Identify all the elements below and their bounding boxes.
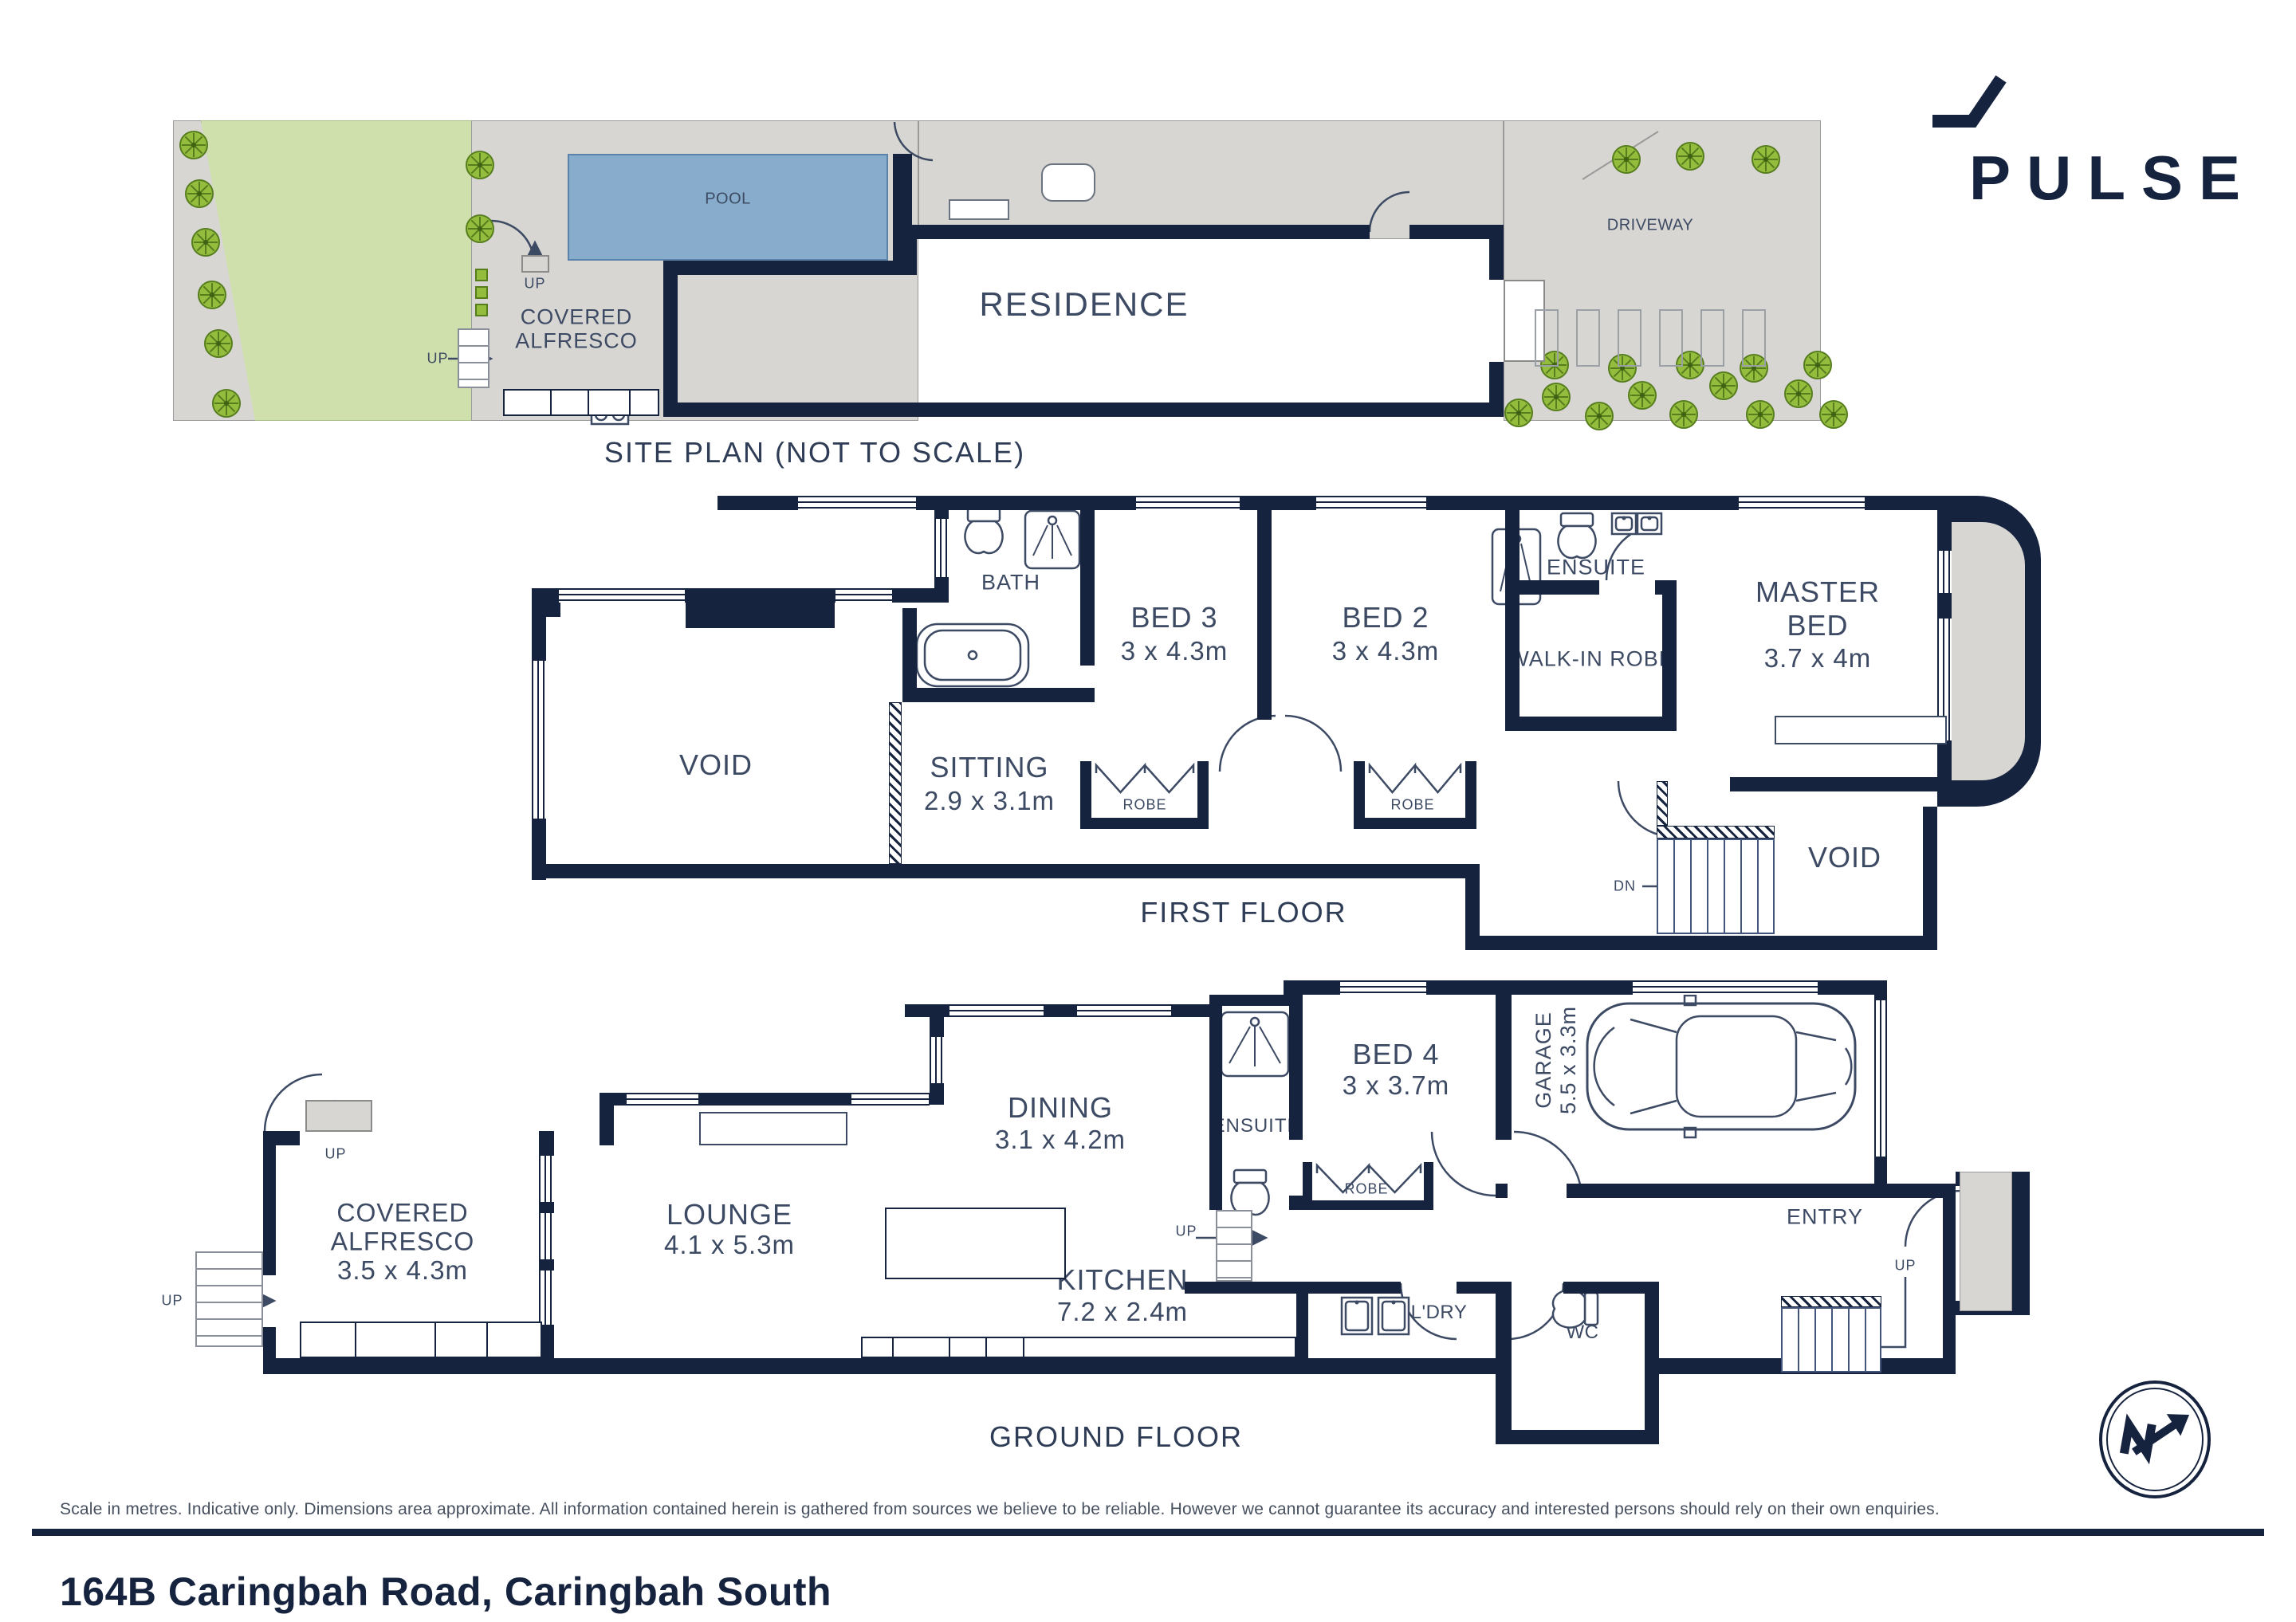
ff-robe3-label: ROBE <box>1122 797 1166 814</box>
site-step <box>521 255 549 273</box>
wall <box>1563 1282 1655 1294</box>
ff-ensuite-label: ENSUITE <box>1547 556 1645 580</box>
ff-master-label-2: BED <box>1787 609 1848 642</box>
gf-lounge-label: LOUNGE <box>666 1198 792 1231</box>
wall <box>930 1017 944 1036</box>
gf-up-label-alfresco-door: UP <box>324 1146 346 1163</box>
wall <box>893 588 949 603</box>
window <box>532 660 546 819</box>
door-arc <box>1432 1132 1496 1196</box>
site-stairs-up <box>458 328 489 388</box>
gf-dining-label: DINING <box>1008 1091 1113 1125</box>
wall <box>1489 239 1504 280</box>
gf-garage-name: GARAGE <box>1531 1006 1556 1114</box>
ff-robe2-label: ROBE <box>1390 797 1434 814</box>
site-side-yard <box>918 120 1504 239</box>
robe-zigzag <box>1370 765 1461 792</box>
wall <box>934 578 949 588</box>
ff-master-label-1: MASTER <box>1755 575 1880 609</box>
wall <box>934 510 949 518</box>
stairs-down-first-floor <box>1657 838 1775 934</box>
gf-alfresco-step <box>305 1100 372 1132</box>
wall <box>902 608 917 688</box>
door-arc <box>1508 1283 1563 1339</box>
gf-fireplace-box <box>699 1112 847 1145</box>
wall <box>902 225 1370 239</box>
gf-laundry-label: L'DRY <box>1411 1302 1468 1324</box>
wall <box>1296 1282 1308 1374</box>
shower-icon <box>1221 1012 1288 1076</box>
disclaimer-text: Scale in metres. Indicative only. Dimens… <box>60 1500 1940 1519</box>
window <box>930 1036 944 1084</box>
wall <box>263 1131 300 1145</box>
window <box>626 1093 699 1106</box>
window <box>835 588 893 603</box>
shower-icon <box>1025 511 1079 568</box>
wall <box>902 688 1095 702</box>
wall <box>663 261 678 417</box>
basin-icon <box>1637 513 1661 534</box>
toilet-icon <box>965 509 1002 553</box>
wall <box>1496 1430 1659 1444</box>
site-water-tank <box>1041 163 1095 202</box>
site-pool-label: POOL <box>705 190 751 209</box>
window <box>851 1093 930 1106</box>
window <box>1076 1004 1172 1017</box>
site-alfresco-label-1: COVERED <box>521 305 633 330</box>
wall <box>1427 496 1738 510</box>
wall <box>2012 1172 2030 1315</box>
window <box>558 588 686 603</box>
gf-left-stairs-up <box>195 1251 263 1347</box>
wall <box>1465 936 1937 950</box>
gf-lounge-dims: 4.1 x 5.3m <box>664 1230 795 1260</box>
wall <box>600 1093 614 1145</box>
basin-icon <box>1378 1298 1409 1334</box>
ff-master-dims: 3.7 x 4m <box>1764 643 1872 674</box>
wall <box>911 1004 931 1017</box>
site-plan-title: SITE PLAN (NOT TO SCALE) <box>604 436 1025 469</box>
wall <box>930 1084 944 1105</box>
wall <box>263 1145 276 1275</box>
ff-sitting-label: SITTING <box>930 751 1049 784</box>
window <box>934 518 949 578</box>
wall <box>1209 1006 1222 1210</box>
site-up-label-pool: UP <box>524 276 545 293</box>
bench-divider <box>550 389 552 416</box>
bench-divider <box>588 389 589 416</box>
ff-wir-label: WALK-IN ROBE <box>1508 647 1674 672</box>
window <box>1135 496 1240 510</box>
gf-alfresco-label-2: ALFRESCO <box>331 1227 474 1257</box>
wall <box>1409 225 1504 239</box>
tree-icon <box>1820 401 1847 428</box>
wall <box>1289 995 1303 1140</box>
wall <box>1520 717 1677 731</box>
address-title: 164B Caringbah Road, Caringbah South <box>60 1569 832 1615</box>
robe-zigzag <box>1096 765 1193 792</box>
wall <box>673 261 917 275</box>
gf-up-label-entry-stairs: UP <box>1894 1258 1916 1274</box>
site-driveway-area <box>1504 120 1821 421</box>
wall <box>263 1327 276 1358</box>
gf-kitchen-island <box>885 1208 1066 1279</box>
door-arc <box>1285 716 1341 772</box>
gf-bbq-bench <box>300 1322 542 1358</box>
ground-floor-title: GROUND FLOOR <box>989 1420 1243 1454</box>
wall <box>717 496 797 510</box>
gf-mid-stairs-up <box>1216 1210 1252 1282</box>
driveway-garden-bed <box>1659 309 1683 367</box>
gf-entry-stairs-up <box>1781 1307 1881 1373</box>
ff-bed2-label: BED 2 <box>1342 601 1429 634</box>
pulse-logo-mark <box>1932 79 2001 121</box>
basin-icon <box>1342 1298 1372 1334</box>
bench-divider <box>892 1337 894 1358</box>
window <box>539 1270 554 1325</box>
site-alfresco-label-2: ALFRESCO <box>515 329 638 354</box>
wall <box>663 403 1504 417</box>
stair-hatch <box>1657 826 1775 838</box>
wall <box>686 588 835 628</box>
window <box>1738 496 1866 510</box>
bench-divider <box>985 1337 987 1358</box>
wall <box>1923 807 1937 936</box>
wall <box>1520 580 1599 595</box>
balcony-floor <box>1952 522 2025 780</box>
bench-divider <box>355 1322 356 1358</box>
wall <box>917 496 1135 510</box>
ff-bed3-dims: 3 x 4.3m <box>1121 636 1229 666</box>
wall <box>1289 1196 1303 1210</box>
driveway-garden-bed <box>1700 309 1724 367</box>
gf-bed4-label: BED 4 <box>1352 1038 1439 1071</box>
wall <box>1185 1282 1401 1294</box>
bench-divider <box>486 1322 488 1358</box>
ff-sitting-dims: 2.9 x 3.1m <box>924 786 1055 816</box>
bench-divider <box>949 1337 950 1358</box>
gf-dining-dims: 3.1 x 4.2m <box>995 1125 1126 1155</box>
gf-bed4-dims: 3 x 3.7m <box>1343 1070 1450 1101</box>
wall <box>539 1260 554 1270</box>
gf-wc-label: WC <box>1567 1322 1599 1344</box>
wall <box>1567 1184 1956 1198</box>
toilet-icon <box>1558 513 1595 558</box>
hatched-wall <box>889 702 902 864</box>
site-residence-label: RESIDENCE <box>979 285 1189 324</box>
wall <box>539 1131 554 1155</box>
basin-icon <box>1612 513 1636 534</box>
gf-ensuite-label: ENSUITE <box>1212 1115 1300 1137</box>
window <box>1632 980 1818 995</box>
window <box>539 1212 554 1260</box>
ff-bath-label: BATH <box>981 571 1040 595</box>
wall <box>1303 1200 1433 1210</box>
ff-dn-label: DN <box>1614 878 1636 895</box>
gf-entry-label: ENTRY <box>1787 1205 1863 1230</box>
wall <box>1427 980 1632 995</box>
wall <box>699 1093 851 1106</box>
site-bbq-bench <box>503 389 659 416</box>
site-up-label-stairs: UP <box>427 351 448 367</box>
gf-up-label-mid-stairs: UP <box>1175 1223 1197 1240</box>
wall <box>1080 818 1209 829</box>
window <box>539 1155 554 1203</box>
stair-hatch <box>1781 1296 1881 1307</box>
gf-kitchen-dims: 7.2 x 2.4m <box>1057 1297 1188 1327</box>
gf-garage-label: GARAGE 5.5 x 3.3m <box>1531 1006 1581 1114</box>
site-driveway-label: DRIVEWAY <box>1607 217 1693 235</box>
wall <box>532 864 1480 878</box>
window <box>1339 980 1427 995</box>
wall <box>1645 1282 1659 1444</box>
wall <box>539 1203 554 1212</box>
wall <box>1354 818 1476 829</box>
wall <box>1257 510 1272 720</box>
wall <box>1866 496 1937 510</box>
window <box>1874 1000 1887 1157</box>
window <box>949 1004 1044 1017</box>
pulse-logo-text: PULSE <box>1969 142 2256 214</box>
bench-divider <box>1023 1337 1024 1358</box>
gf-kitchen-label: KITCHEN <box>1056 1263 1188 1297</box>
gf-up-label-left-stairs: UP <box>161 1293 183 1310</box>
gf-alfresco-label-1: COVERED <box>336 1199 468 1228</box>
ff-master-bed-furniture <box>1775 716 1947 744</box>
bathtub-icon <box>917 624 1028 686</box>
wall <box>1496 1184 1508 1198</box>
wall <box>1655 580 1677 595</box>
bench-divider <box>629 389 631 416</box>
gf-kitchen-bench <box>861 1337 1296 1358</box>
car-icon <box>1587 996 1855 1137</box>
floorplan-page: PULSE POOL COVERED ALFRESCO RESIDENCE DR… <box>0 0 2296 1622</box>
window <box>1937 550 1952 594</box>
wall <box>1662 595 1677 731</box>
wall <box>1730 777 1952 791</box>
wall <box>1505 510 1520 731</box>
wall <box>546 588 558 603</box>
compass-icon <box>2101 1382 2209 1497</box>
gf-porch-floor <box>1960 1172 2012 1311</box>
footer-rule <box>32 1529 2264 1536</box>
ff-bed2-dims: 3 x 4.3m <box>1332 636 1440 666</box>
gf-robe-label: ROBE <box>1344 1181 1388 1198</box>
ff-bed3-label: BED 3 <box>1130 601 1217 634</box>
wall <box>263 1358 1496 1374</box>
hatched-wall <box>1657 781 1668 826</box>
wall <box>1943 1198 1956 1358</box>
gf-garage-dims: 5.5 x 3.3m <box>1556 1006 1581 1114</box>
wall <box>1496 1282 1512 1444</box>
ff-void2-label: VOID <box>1808 841 1881 874</box>
gf-alfresco-dims: 3.5 x 4.3m <box>337 1255 468 1286</box>
bench-divider <box>434 1322 436 1358</box>
window <box>1315 496 1427 510</box>
wall <box>1080 510 1095 666</box>
driveway-garden-bed <box>1576 309 1600 367</box>
wall <box>1240 496 1315 510</box>
driveway-garden-bed <box>1742 309 1766 367</box>
window <box>797 496 917 510</box>
wall <box>532 603 546 660</box>
site-ac-unit <box>949 199 1009 220</box>
wall <box>1044 1004 1076 1017</box>
wall <box>1496 980 1512 1140</box>
door-arc <box>1220 716 1276 772</box>
toilet-icon <box>1231 1170 1268 1215</box>
wall <box>1818 980 1887 995</box>
ff-void-label: VOID <box>679 748 753 782</box>
driveway-garden-bed <box>1535 309 1559 367</box>
driveway-garden-bed <box>1618 309 1641 367</box>
first-floor-title: FIRST FLOOR <box>1140 896 1347 929</box>
